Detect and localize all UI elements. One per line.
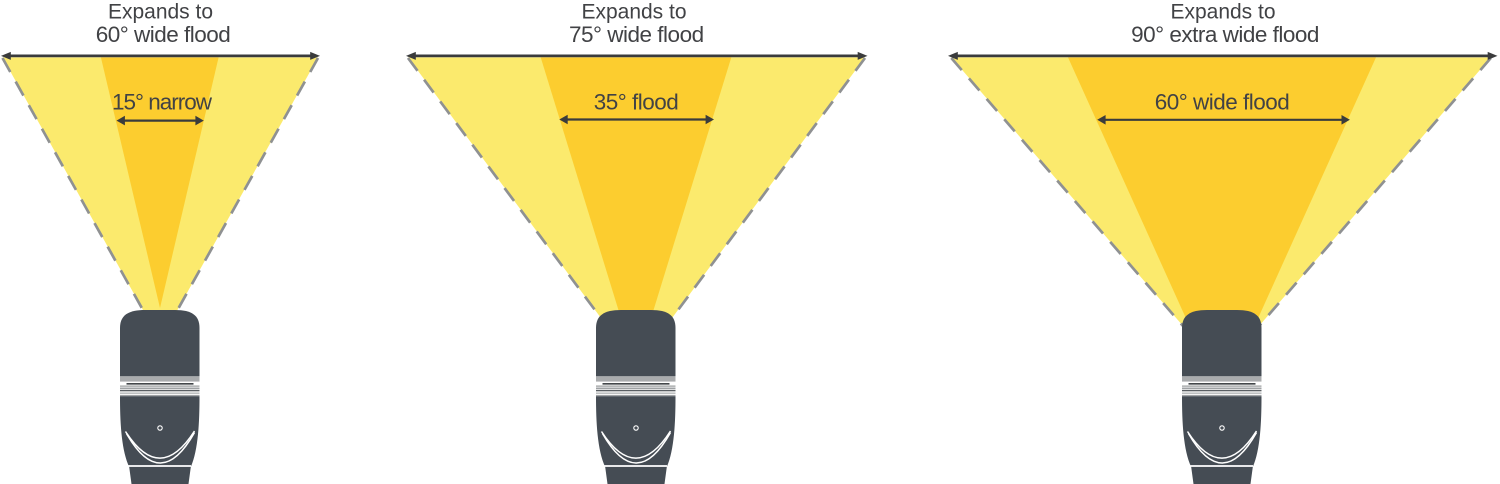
svg-text:60° wide flood: 60° wide flood [1155,90,1290,115]
svg-text:60° wide flood: 60° wide flood [96,22,231,47]
svg-text:Expands to: Expands to [1170,1,1275,24]
svg-text:Expands to: Expands to [581,1,686,24]
svg-text:Expands to: Expands to [108,1,213,24]
svg-text:35° flood: 35° flood [594,90,679,115]
svg-text:75° wide flood: 75° wide flood [569,22,704,47]
svg-text:15° narrow: 15° narrow [112,90,213,115]
svg-text:90° extra wide flood: 90° extra wide flood [1131,22,1319,47]
